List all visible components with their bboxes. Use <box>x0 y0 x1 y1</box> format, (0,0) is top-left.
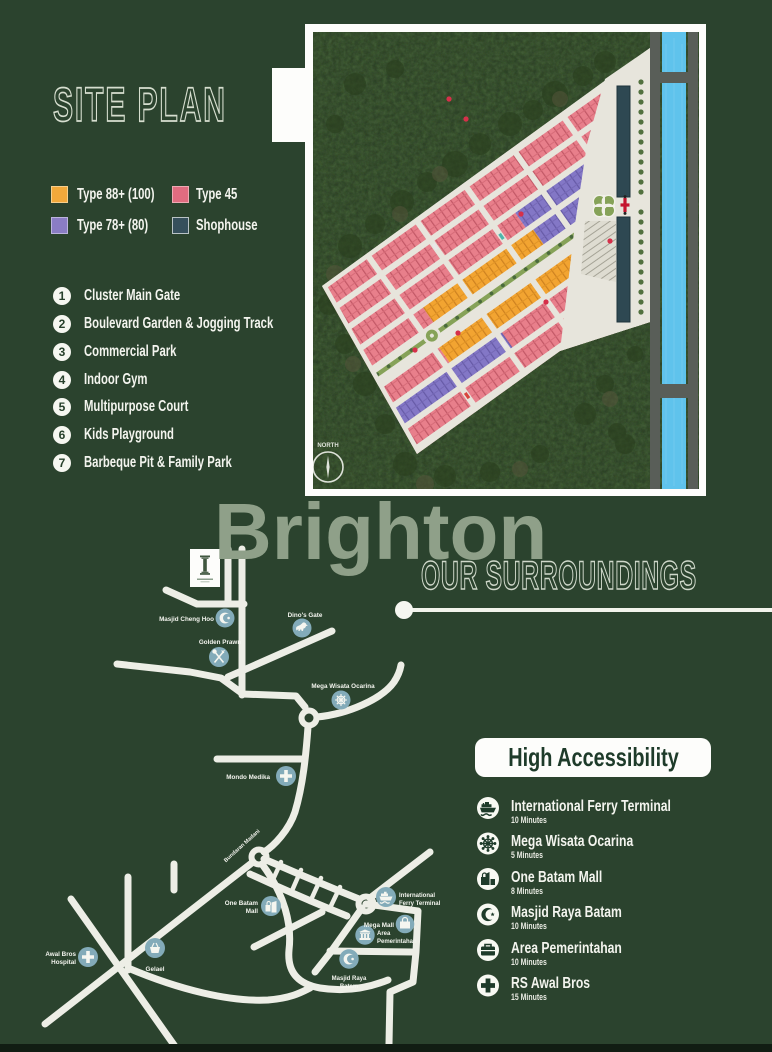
svg-text:Gelael: Gelael <box>146 966 165 973</box>
svg-text:Mega Mall: Mega Mall <box>364 922 394 929</box>
svg-text:Masjid Cheng Hoo: Masjid Cheng Hoo <box>159 616 214 623</box>
svg-text:Dino's Gate: Dino's Gate <box>288 612 323 619</box>
svg-text:One Batam: One Batam <box>225 900 259 907</box>
svg-text:NORTH: NORTH <box>317 443 338 449</box>
svg-text:Mondo Medika: Mondo Medika <box>226 774 270 781</box>
svg-text:Masjid Raya: Masjid Raya <box>332 976 367 982</box>
svg-text:Awal Bros: Awal Bros <box>45 951 76 958</box>
svg-text:Area: Area <box>377 931 391 937</box>
svg-text:Pemerintahan: Pemerintahan <box>377 939 417 945</box>
svg-text:Golden Prawn: Golden Prawn <box>199 639 241 646</box>
svg-text:Bundaran Madani: Bundaran Madani <box>223 828 262 864</box>
svg-text:Mall: Mall <box>246 908 258 915</box>
svg-text:Ferry Terminal: Ferry Terminal <box>399 901 441 907</box>
svg-text:Batam: Batam <box>340 984 358 990</box>
svg-text:Hospital: Hospital <box>51 959 76 966</box>
svg-text:Mega Wisata Ocarina: Mega Wisata Ocarina <box>311 683 375 690</box>
svg-text:International: International <box>399 893 435 899</box>
